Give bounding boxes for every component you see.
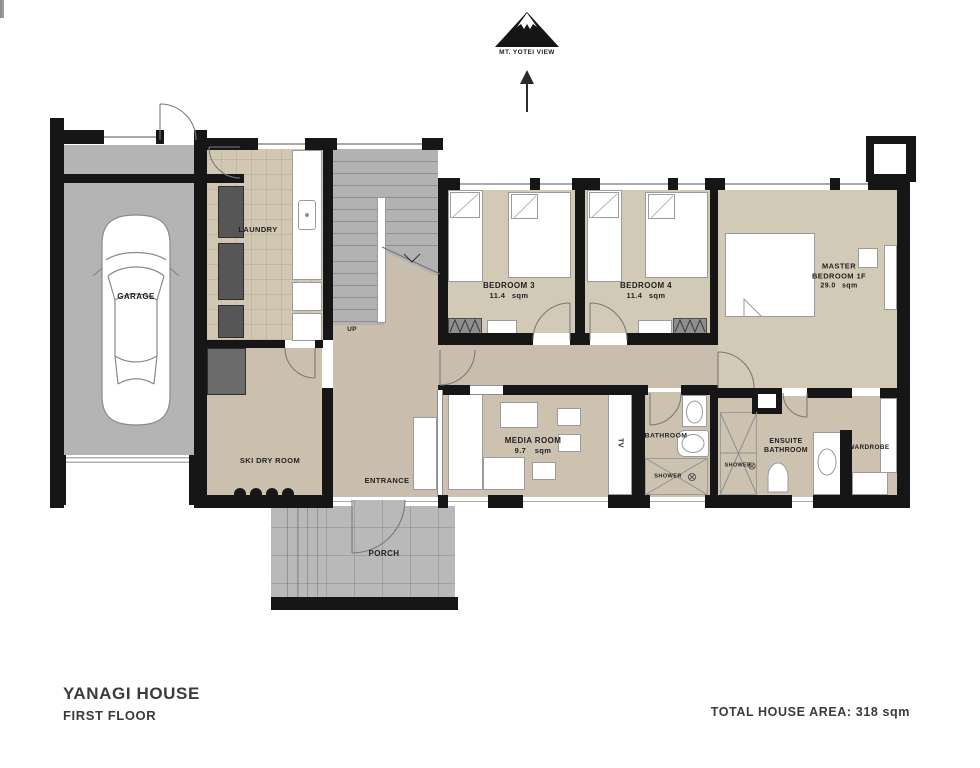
boot-warmer [266, 488, 278, 495]
wall-segment [315, 340, 323, 348]
room-area: 29.0 sqm [812, 281, 866, 290]
wall-segment [570, 333, 590, 345]
ski-dry-closet [207, 348, 246, 395]
window [405, 497, 438, 506]
wall-segment [438, 333, 533, 345]
wall-segment [897, 180, 910, 508]
porch-steps [278, 500, 318, 597]
wall-segment [207, 340, 285, 348]
boot-warmer [282, 488, 294, 495]
wall-segment [705, 495, 718, 508]
ski-dry-shelf [2, 0, 4, 18]
laundry-closet [218, 243, 244, 300]
wall-segment [156, 130, 164, 144]
ottoman [558, 434, 581, 452]
room-area: 11.4 sqm [483, 291, 535, 301]
wall-segment [710, 190, 718, 345]
porch-label: PORCH [369, 549, 400, 559]
wall-segment [807, 388, 852, 398]
window [460, 179, 530, 189]
window [650, 497, 705, 506]
sofa [448, 392, 483, 490]
master-bed [725, 233, 815, 317]
ottoman [532, 462, 556, 480]
room-name: BEDROOM 4 [620, 281, 672, 291]
cabinet [638, 320, 672, 334]
wall-segment [830, 178, 840, 190]
view-direction-arrow [520, 70, 534, 112]
wall-segment [438, 178, 460, 190]
garage-door-jamb [189, 455, 207, 505]
bedroom4-label: BEDROOM 4 11.4 sqm [620, 281, 672, 301]
window [104, 132, 156, 142]
stair-treads-lower [333, 250, 377, 323]
pillow [450, 192, 480, 218]
floor-title: FIRST FLOOR [63, 708, 156, 723]
tv-label: TV [615, 438, 624, 448]
wall-segment [438, 495, 448, 508]
wall-segment [323, 143, 333, 340]
wall-segment [575, 190, 585, 333]
wall-segment [880, 388, 905, 398]
window [448, 497, 488, 506]
wall-segment [194, 495, 333, 508]
porch-edge-wall [271, 597, 458, 610]
boot-warmer [250, 488, 262, 495]
hallway-floor [438, 345, 718, 388]
house-title: YANAGI HOUSE [63, 684, 200, 704]
garage-label: GARAGE [117, 292, 155, 302]
pillow [589, 192, 619, 218]
boot-warmer [234, 488, 246, 495]
wall-segment [503, 385, 648, 395]
stairs-up-label: UP [347, 326, 357, 334]
wall-segment [705, 178, 725, 190]
wall-niche [758, 394, 776, 408]
wall-segment [422, 138, 443, 150]
laundry-label: LAUNDRY [238, 225, 277, 235]
wall-segment [322, 388, 333, 495]
entrance-bench [413, 417, 437, 490]
wall-segment [488, 495, 523, 508]
ottoman [557, 408, 581, 426]
bench [884, 245, 897, 310]
mt-yotei-icon [495, 12, 559, 47]
room-name: BEDROOM 3 [483, 281, 535, 291]
room-name: MASTER [812, 262, 866, 272]
pillow [648, 194, 675, 219]
compass-label: MT. YOTEI VIEW [499, 49, 555, 57]
room-name: MEDIA ROOM [505, 436, 562, 446]
window [337, 139, 422, 149]
radiator [673, 318, 707, 334]
wardrobe-label: WARDROBE [848, 444, 889, 452]
dryer [292, 313, 322, 341]
wall-segment [530, 178, 540, 190]
room-name: ENSUITE [764, 437, 808, 446]
ensuite-shower-area [720, 412, 757, 495]
window [258, 139, 305, 149]
window [600, 179, 668, 189]
total-area-label: TOTAL HOUSE AREA: 318 sqm [695, 705, 910, 719]
wardrobe-closet [880, 398, 897, 473]
stair-stringer [377, 197, 386, 323]
wall-segment [710, 390, 718, 497]
wall-segment [50, 130, 104, 144]
wall-segment [718, 495, 792, 508]
wall-segment [840, 430, 852, 497]
chimney-flue [874, 144, 906, 174]
vanity [813, 432, 843, 495]
garage-floor [64, 182, 194, 455]
laundry-closet [218, 305, 244, 338]
garage-door-jamb [50, 455, 66, 505]
media-room-label: MEDIA ROOM 9.7 sqm [505, 436, 562, 456]
bedroom3-label: BEDROOM 3 11.4 sqm [483, 281, 535, 301]
room-name: BATHROOM [764, 446, 808, 455]
sofa [483, 457, 525, 490]
wall-segment [608, 495, 650, 508]
wall-segment [632, 390, 645, 497]
entrance-label: ENTRANCE [365, 476, 410, 486]
radiator [448, 318, 482, 334]
wall-segment [207, 138, 258, 150]
pillow [511, 194, 538, 219]
washer [292, 282, 322, 311]
window [725, 179, 830, 189]
bathroom-label: BATHROOM [645, 433, 688, 442]
wall-segment [438, 190, 448, 333]
floor-plan-canvas: MT. YOTEI VIEW GARAGE LAUNDRY UP BEDROOM… [0, 0, 980, 768]
wall-segment [668, 178, 678, 190]
room-area: 9.7 sqm [505, 446, 562, 456]
wall-segment [627, 333, 718, 345]
window [523, 497, 608, 506]
wall-segment [50, 174, 244, 183]
room-name: BEDROOM 1F [812, 271, 866, 281]
window [792, 497, 813, 506]
ensuite-label: ENSUITE BATHROOM [764, 437, 808, 455]
wall-segment [813, 495, 910, 508]
window [333, 497, 353, 506]
wall-segment [194, 130, 207, 178]
cabinet [487, 320, 517, 334]
glass-partition [437, 390, 443, 497]
wardrobe-closet [852, 472, 888, 495]
garage-door [66, 455, 189, 465]
wall-segment [572, 178, 600, 190]
room-area: 11.4 sqm [620, 291, 672, 301]
ensuite-shower-label: SHOWER [725, 462, 752, 469]
laundry-sink [298, 200, 316, 230]
master-bedroom-label: MASTER BEDROOM 1F 29.0 sqm [812, 262, 866, 291]
ski-dry-label: SKI DRY ROOM [240, 456, 300, 466]
coffee-table [500, 402, 538, 428]
window [540, 179, 572, 189]
window [678, 179, 705, 189]
toilet [682, 395, 707, 427]
bathroom-shower-label: SHOWER [654, 473, 682, 480]
window [840, 179, 868, 189]
sliding-door [470, 385, 503, 395]
